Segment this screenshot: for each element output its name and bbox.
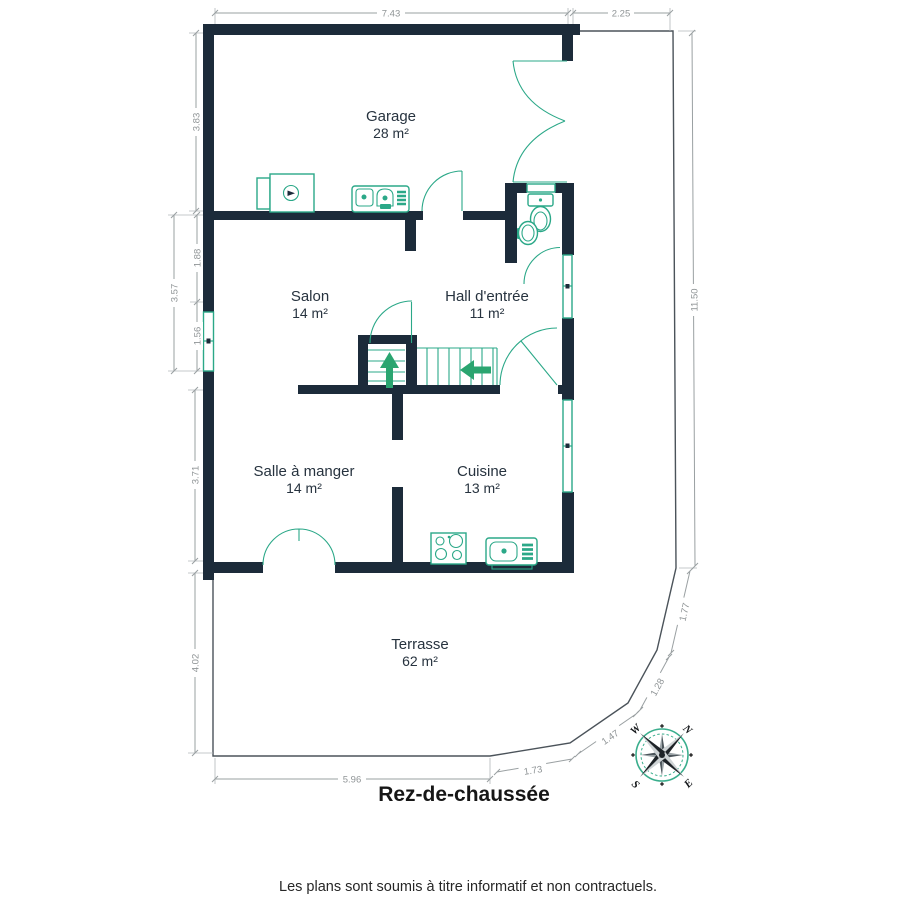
front-door xyxy=(500,328,557,385)
disclaimer-text: Les plans sont soumis à titre informatif… xyxy=(279,879,657,895)
wc-window xyxy=(527,184,555,192)
svg-text:2.25: 2.25 xyxy=(612,9,631,20)
svg-text:Cuisine: Cuisine xyxy=(457,463,507,480)
dimension-right-side: 11.50 xyxy=(678,30,701,569)
svg-text:Terrasse: Terrasse xyxy=(391,636,449,653)
svg-text:3.71: 3.71 xyxy=(191,466,202,485)
svg-text:1.56: 1.56 xyxy=(193,327,204,346)
stairs xyxy=(368,348,497,388)
floor-title: Rez-de-chaussée xyxy=(378,783,550,806)
svg-text:11.50: 11.50 xyxy=(690,288,701,311)
dimension-top-right: 2.25 xyxy=(570,7,673,31)
svg-text:4.02: 4.02 xyxy=(191,654,202,673)
floor-plan-drawing: 7.43 2.25 3.83 1.88 1.56 3.57 xyxy=(0,0,900,900)
svg-text:Salon: Salon xyxy=(291,288,329,305)
dimension-left-garage: 3.83 xyxy=(189,30,203,214)
kitchen-sink-icon xyxy=(486,538,537,569)
garage-salon-door xyxy=(422,171,462,211)
svg-text:1.73: 1.73 xyxy=(523,764,543,778)
dimension-left-salon-window: 1.56 xyxy=(191,302,204,374)
dimension-bottom: 5.96 xyxy=(212,758,493,786)
stove-icon xyxy=(431,533,466,564)
room-label-garage: Garage 28 m² xyxy=(366,108,416,141)
svg-text:Hall d'entrée: Hall d'entrée xyxy=(445,288,529,305)
svg-text:3.57: 3.57 xyxy=(170,284,181,303)
svg-text:62 m²: 62 m² xyxy=(402,653,438,669)
garage-sink-icon xyxy=(352,186,409,212)
svg-text:14 m²: 14 m² xyxy=(292,305,328,321)
svg-text:1.88: 1.88 xyxy=(193,249,204,268)
dimension-top-width: 7.43 xyxy=(212,7,571,24)
room-label-terrace: Terrasse 62 m² xyxy=(391,636,449,669)
wc-door xyxy=(524,248,560,285)
dimension-terrace-seg-c: 1.28 xyxy=(637,654,672,713)
svg-text:13 m²: 13 m² xyxy=(464,480,500,496)
salon-window xyxy=(204,312,214,371)
dimension-left-dining: 3.71 xyxy=(188,387,203,564)
compass-south-label: S xyxy=(629,778,642,791)
room-label-salon: Salon 14 m² xyxy=(291,288,329,321)
room-label-kitchen: Cuisine 13 m² xyxy=(457,463,507,496)
french-doors xyxy=(263,529,335,565)
svg-text:7.43: 7.43 xyxy=(382,9,401,20)
compass-east-label: E xyxy=(681,777,695,791)
svg-text:28 m²: 28 m² xyxy=(373,125,409,141)
washing-machine-icon xyxy=(257,174,314,212)
dimension-terrace-seg-d: 1.77 xyxy=(668,568,693,656)
wc-sink-icon xyxy=(517,222,538,245)
floor-plan-page: 7.43 2.25 3.83 1.88 1.56 3.57 xyxy=(0,0,900,900)
svg-text:11 m²: 11 m² xyxy=(470,305,505,321)
stairs-left-arrow-icon xyxy=(460,360,491,380)
stairs-up-arrow-icon xyxy=(380,352,399,388)
garage-double-door xyxy=(513,61,567,182)
room-label-hall: Hall d'entrée 11 m² xyxy=(445,288,529,321)
room-label-dining: Salle à manger 14 m² xyxy=(254,463,355,496)
hall-window xyxy=(563,255,572,318)
kitchen-window xyxy=(563,400,572,492)
svg-text:3.83: 3.83 xyxy=(192,113,203,132)
svg-text:Garage: Garage xyxy=(366,108,416,125)
svg-text:14 m²: 14 m² xyxy=(286,480,322,496)
svg-text:Salle à manger: Salle à manger xyxy=(254,463,355,480)
compass-rose-icon: N E S W xyxy=(628,721,696,791)
dimension-terrace-seg-a: 1.73 xyxy=(494,756,575,779)
dimension-left-terrace: 4.02 xyxy=(188,570,213,756)
dimension-left-salon-total: 3.57 xyxy=(168,212,181,374)
svg-text:5.96: 5.96 xyxy=(343,775,362,786)
